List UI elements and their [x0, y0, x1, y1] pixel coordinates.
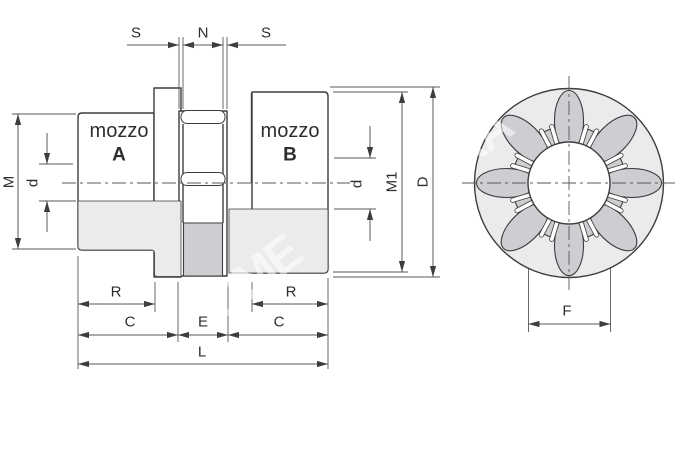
dim-label-m1: M1: [384, 172, 401, 193]
dim-label-r-left: R: [111, 284, 122, 301]
dim-label-c-left: C: [125, 314, 136, 331]
dim-label-e: E: [198, 314, 208, 331]
dim-label-c-right: C: [274, 314, 285, 331]
dim-label-n: N: [198, 25, 209, 42]
dim-label-d-right: d: [349, 180, 366, 188]
drawing-canvas: mozzo A mozzo B: [0, 0, 675, 450]
claw-slot-top: [181, 111, 225, 124]
dim-label-s-right: S: [261, 25, 271, 42]
coupling-technical-drawing: mozzo A mozzo B: [0, 0, 675, 450]
hub-b-word: mozzo: [261, 120, 320, 142]
hub-a-word: mozzo: [90, 120, 149, 142]
spider-section-fill: [184, 223, 223, 276]
claw-slot-mid: [181, 173, 225, 186]
dim-label-m: M: [1, 176, 18, 189]
dim-label-d-left: d: [25, 179, 42, 187]
hub-b-letter: B: [283, 145, 297, 166]
hub-a-letter: A: [112, 145, 126, 166]
hub-a-section-fill: [78, 201, 181, 277]
section-view: mozzo A mozzo B: [62, 88, 350, 277]
dim-label-s-left: S: [131, 25, 141, 42]
dim-label-big-d: D: [415, 176, 432, 187]
dim-label-f: F: [562, 303, 571, 320]
dim-label-l: L: [198, 344, 206, 361]
